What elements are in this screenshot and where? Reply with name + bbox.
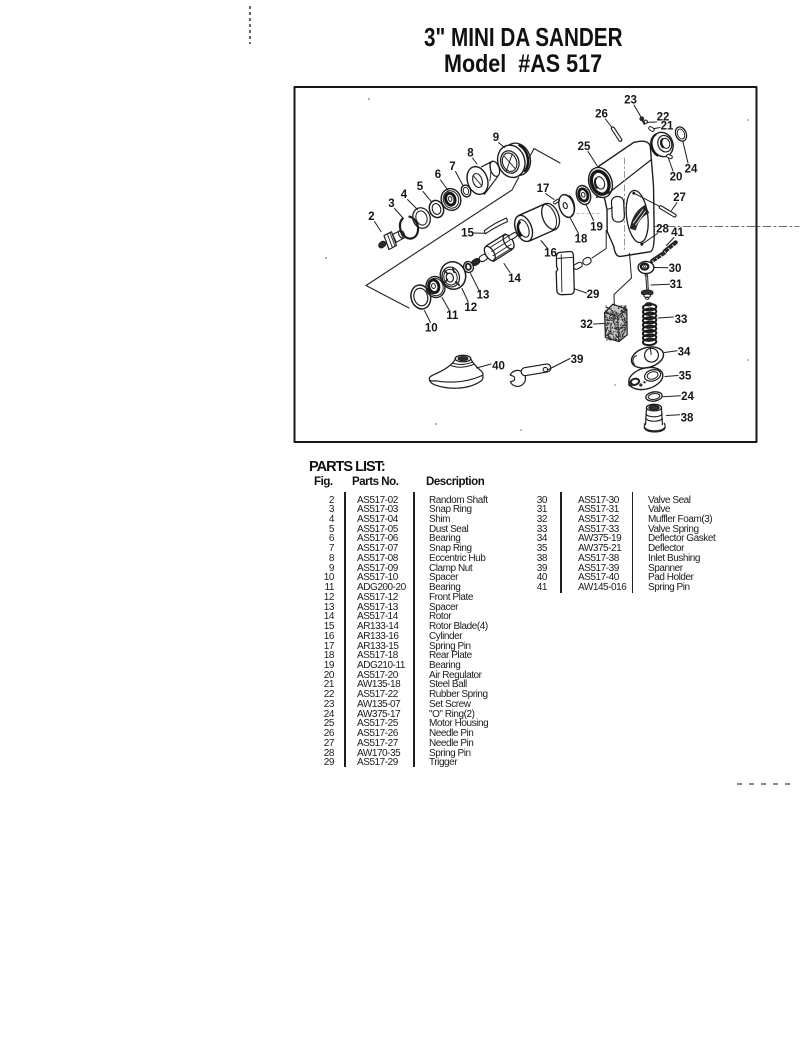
svg-text:12: 12 [464,302,477,314]
svg-text:38: 38 [681,412,694,424]
svg-text:19: 19 [590,222,603,234]
svg-text:10: 10 [425,323,438,335]
svg-text:41: 41 [671,227,684,239]
svg-text:7: 7 [449,161,455,173]
svg-text:14: 14 [508,273,521,285]
svg-text:11: 11 [446,310,459,322]
svg-text:30: 30 [669,263,682,275]
svg-text:27: 27 [673,192,686,204]
svg-text:35: 35 [679,370,692,382]
svg-text:6: 6 [435,169,441,181]
svg-text:3: 3 [388,198,394,210]
svg-text:39: 39 [571,354,584,366]
svg-text:21: 21 [661,121,674,133]
svg-text:28: 28 [656,223,669,235]
svg-text:40: 40 [492,360,505,372]
svg-text:24: 24 [685,164,698,176]
svg-text:31: 31 [670,279,683,291]
svg-text:24: 24 [681,391,694,403]
svg-text:4: 4 [401,189,408,201]
svg-text:25: 25 [578,141,591,153]
svg-text:18: 18 [575,233,588,245]
svg-text:33: 33 [675,314,688,326]
svg-text:29: 29 [587,289,600,301]
svg-text:32: 32 [580,319,593,331]
svg-text:23: 23 [624,95,637,107]
svg-text:20: 20 [670,171,683,183]
svg-text:34: 34 [678,346,691,358]
svg-text:2: 2 [368,211,374,223]
svg-text:8: 8 [467,148,474,160]
svg-text:15: 15 [461,228,474,240]
svg-text:16: 16 [544,247,557,259]
svg-text:26: 26 [595,109,608,121]
svg-text:17: 17 [537,183,550,195]
svg-text:13: 13 [477,290,490,302]
